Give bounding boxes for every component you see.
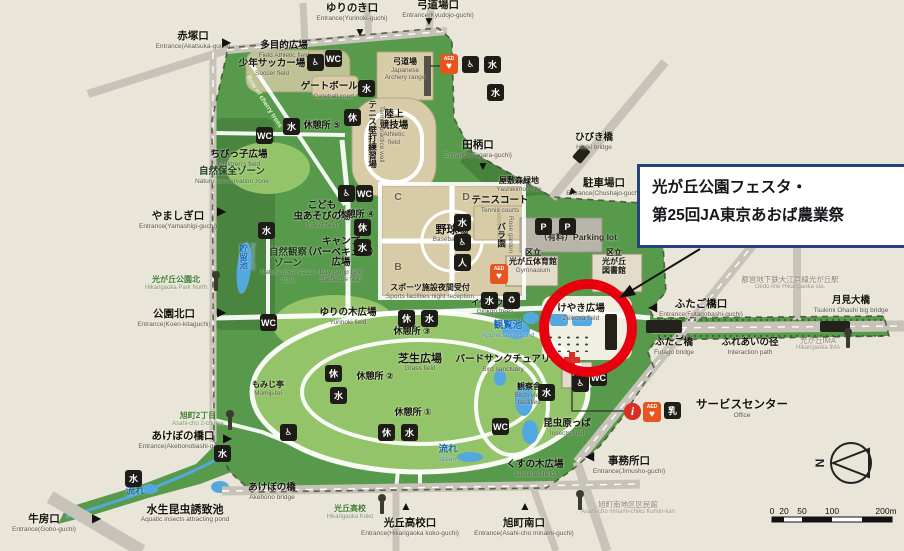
callout-arrow <box>621 249 700 297</box>
callout-line-2: 第25回JA東京あおば農業祭 <box>652 202 902 230</box>
callout-line-1: 光が丘公園フェスタ・ <box>652 174 902 202</box>
event-callout: 光が丘公園フェスタ・ 第25回JA東京あおば農業祭 <box>637 164 904 248</box>
highlight-overlay <box>0 0 904 551</box>
event-highlight-circle <box>544 284 632 372</box>
park-map: N 赤塚口Entrance(Akatsuka-guchi)ゆりのき口Entran… <box>0 0 904 551</box>
